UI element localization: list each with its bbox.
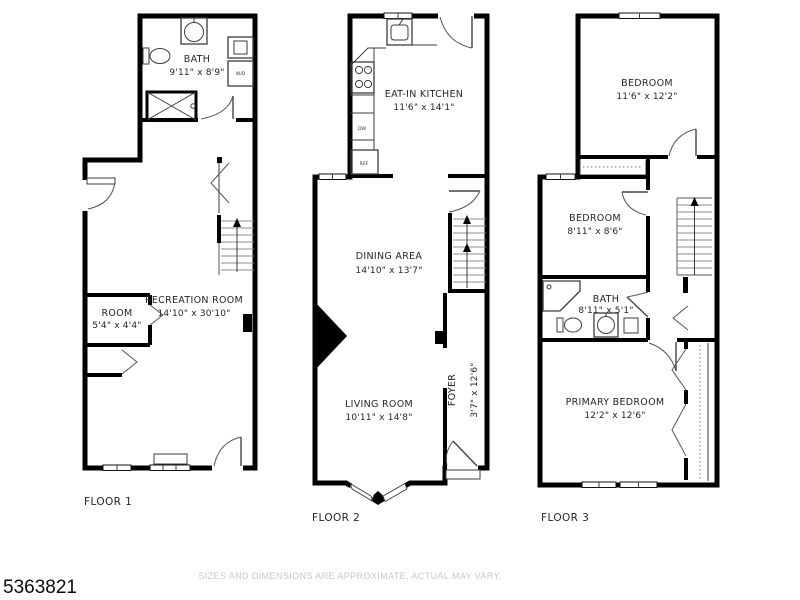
floor-plan-page: W/D BATH 9'11" x 8'9" [0,0,800,600]
floor1-front-door-opening [212,463,243,472]
floor3-sink-bowl [598,317,615,334]
floor1-front-door-arc [214,437,241,466]
room-label-bath1: BATH [184,54,210,65]
floor1-stair-wall [217,215,221,243]
room-dims-bedroom1: 11'6" x 12'2" [616,92,677,102]
room-dims-kitchen: 11'6" x 14'1" [393,103,454,113]
floor2-stair-door-arc [449,191,480,212]
room-label-primary: PRIMARY BEDROOM [566,397,665,408]
room-label-dining: DINING AREA [356,251,423,262]
floor3-shower-door [563,294,577,308]
kitchen-sink-bowl [391,25,408,40]
floor3-shower-head [547,285,551,289]
stove-box [351,62,374,93]
refrigerator-label: REF [360,161,369,167]
dishwasher-label: DW [358,126,367,132]
floor2-rear-door-arc [440,17,472,48]
laundry-appliance [228,37,253,58]
stove-burner [364,80,371,87]
room-label-recreation: RECREATION ROOM [145,295,243,306]
room-dims-living: 10'11" x 14'8" [345,413,412,423]
room-label-bath3: BATH [593,294,619,305]
room-dims-primary: 12'2" x 12'6" [584,411,645,421]
toilet-icon [150,49,170,64]
floor-plan-drawing: W/D BATH 9'11" x 8'9" [0,0,800,600]
floor2-chimney [315,302,347,370]
floor2-front-door-arc [446,441,453,465]
room-dims-room: 5'4" x 4'4" [92,321,141,331]
room-label-room: ROOM [102,308,133,319]
floor3-bath-cabinet [624,318,638,333]
floor2-plan: DW REF EAT-IN KITCHEN 11'6" x 14'1" DINI… [312,11,487,524]
floor3-bedroom2-door-arc [622,192,646,215]
stove-burner [355,80,362,87]
bay-window-patch [351,486,372,499]
floor1-closet2-door [122,350,137,374]
floor3-primary-door-arc [649,343,676,371]
floor3-name: FLOOR 3 [541,512,589,524]
floor1-side-door-arc [88,182,115,209]
floor2-door-step [446,470,480,479]
closet-jamb [684,390,688,404]
stove-burner [364,66,371,73]
bath-sink-icon [185,23,204,42]
floor1-wall-pilaster [243,314,252,332]
floor1-porch-step [154,454,187,464]
closet-jamb [684,341,688,349]
floor1-side-door-opening [81,180,89,211]
floor1-side-door-leaf [87,178,115,184]
floor3-stair-stub [683,277,688,293]
floor1-bath-door-arc [201,96,233,119]
room-label-living: LIVING ROOM [345,399,413,410]
floor3-bath-door-arc [627,292,648,297]
toilet-tank [143,48,149,64]
closet-jamb [684,458,688,480]
room-dims-recreation: 14'10" x 30'10" [157,309,230,319]
floor1-plan: W/D BATH 9'11" x 8'9" [81,16,255,508]
stove-burner [355,66,362,73]
laundry-appliance-door [234,41,247,54]
room-dims-dining: 14'10" x 13'7" [355,266,422,276]
disclaimer-text: SIZES AND DIMENSIONS ARE APPROXIMATE, AC… [0,571,700,581]
room-label-foyer: FOYER [447,374,458,406]
floor1-shower-x [147,92,196,120]
floor2-front-door-leaf [453,441,477,466]
floor1-room-walls [85,295,150,345]
room-label-bedroom1: BEDROOM [621,78,673,89]
room-dims-foyer: 3'7" x 12'6" [470,362,480,417]
washer-dryer-label: W/D [236,71,246,77]
floor3-bedroom1-door-arc [669,129,696,156]
floor1-stair-up-arrow [233,218,241,227]
room-dims-bath1: 9'11" x 8'9" [169,68,224,78]
room-label-kitchen: EAT-IN KITCHEN [385,89,463,100]
floor1-closet-doors [211,163,229,203]
floor2-name: FLOOR 2 [312,512,360,524]
floor3-hall-door [673,306,688,330]
listing-number: 5363821 [3,577,77,599]
room-dims-bedroom2: 8'11" x 8'6" [567,227,622,237]
floor2-arch-stub [435,331,445,344]
room-label-bedroom2: BEDROOM [569,213,621,224]
floor1-closet-jamb [217,157,222,163]
floor1-name: FLOOR 1 [84,496,132,508]
floor1-window2 [150,465,190,471]
floor3-toilet-tank [557,318,563,332]
floor2-rear-door-opening [438,11,474,20]
room-dims-bath3: 8'11" x 5'1" [578,306,633,316]
floor3-plan: BEDROOM 11'6" x 12'2" BEDROOM 8'11" x 8'… [540,11,717,524]
bay-window-patch [384,486,406,499]
floor3-toilet-icon [565,318,582,332]
